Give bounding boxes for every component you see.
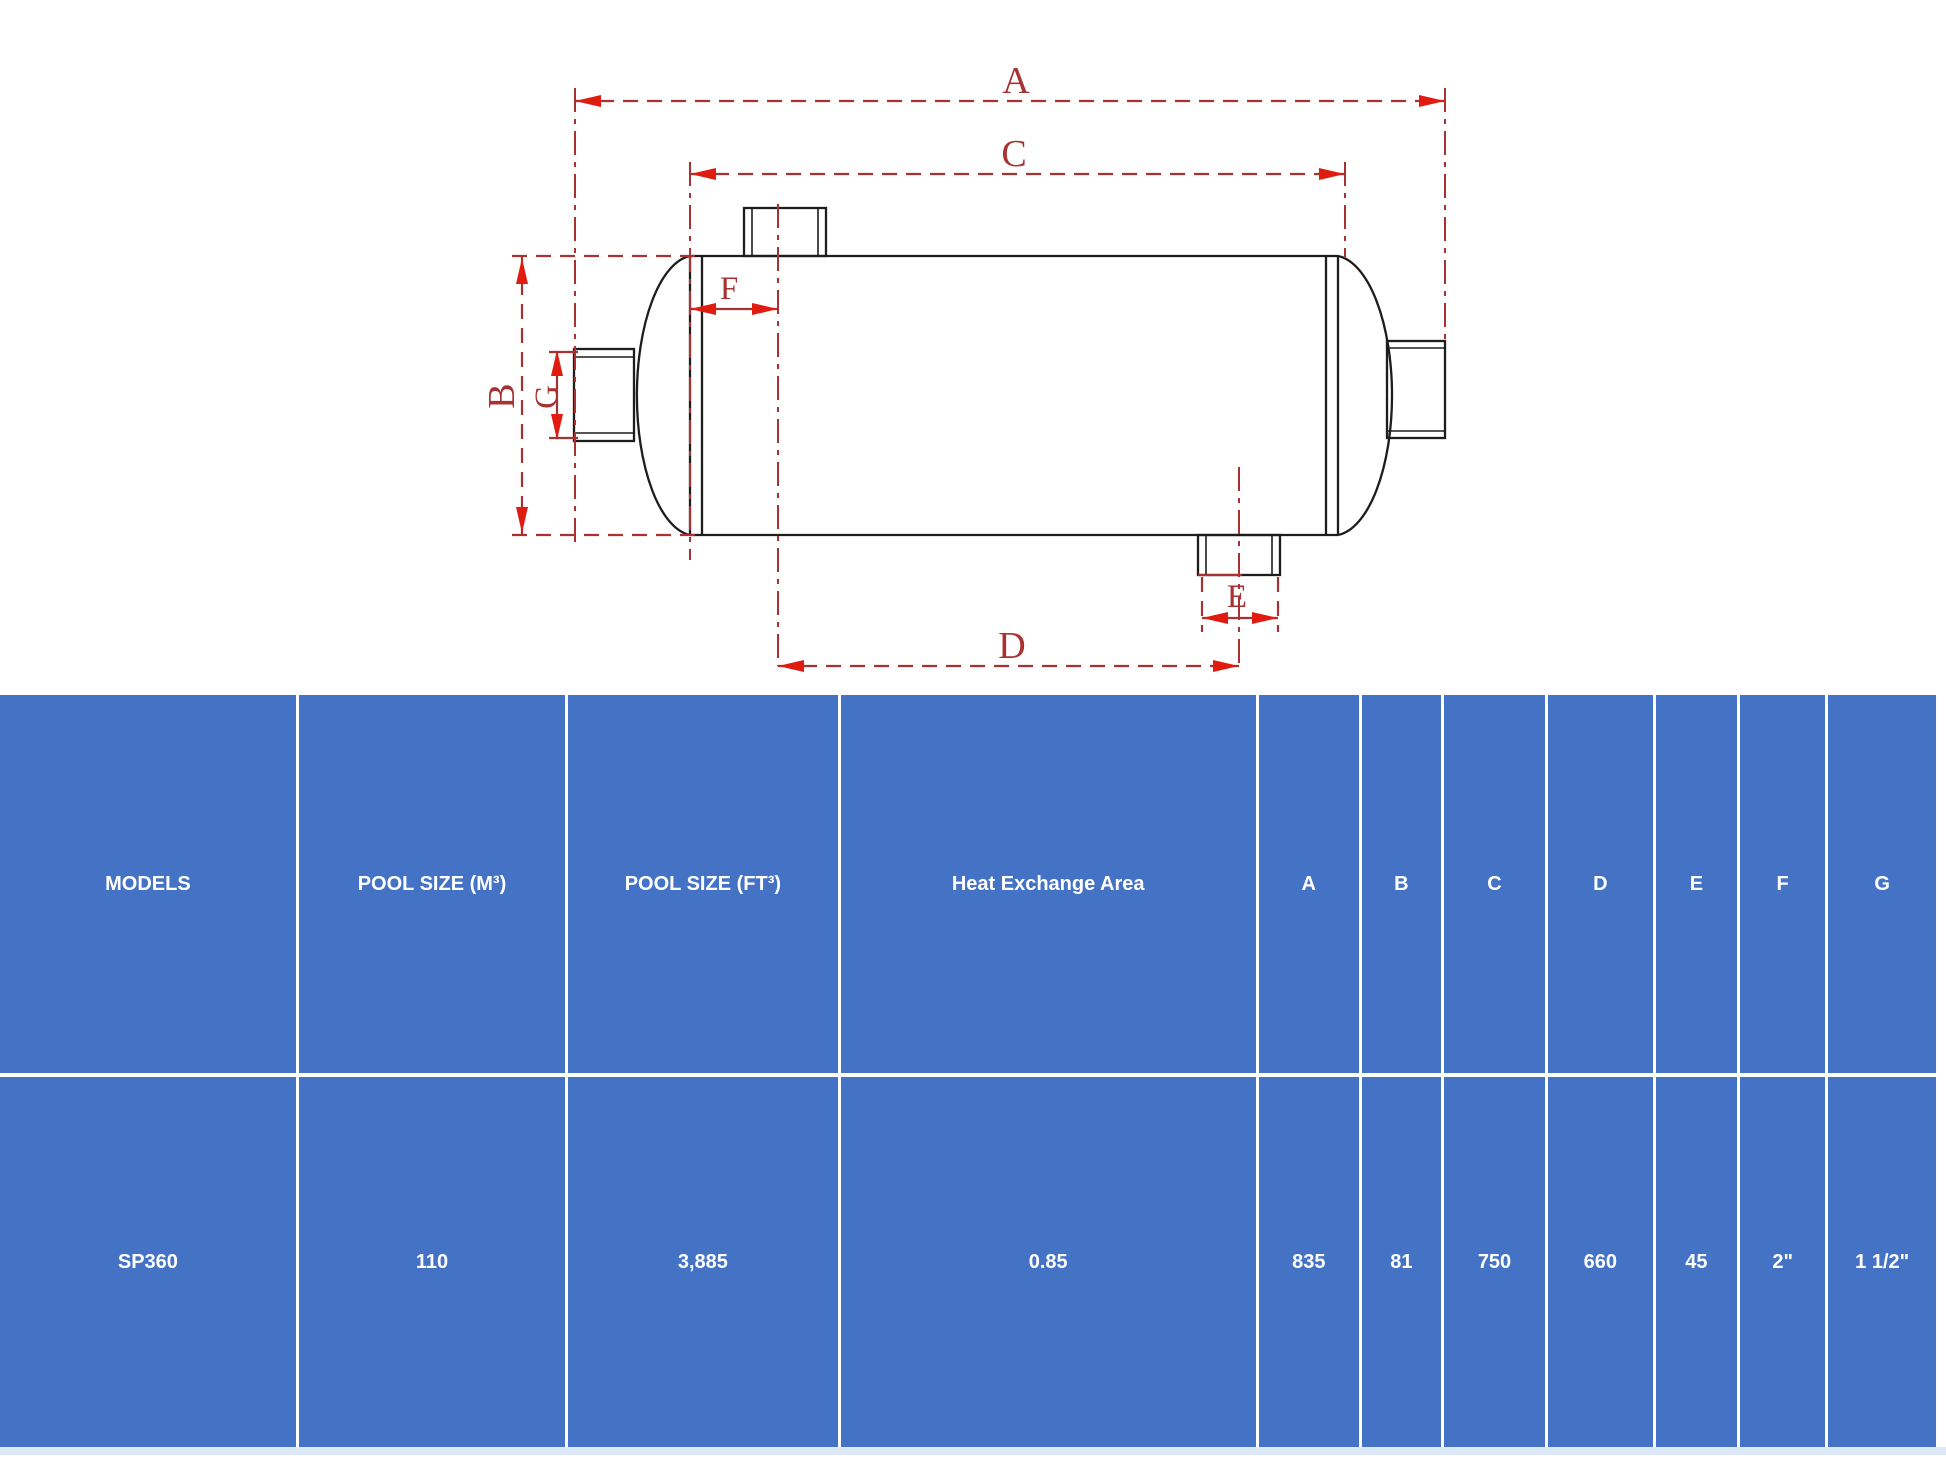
data-cell-a: 835: [1259, 1077, 1359, 1447]
heat-exchanger-diagram: A C F B G E D: [0, 0, 1946, 695]
dim-label-f: F: [720, 271, 738, 307]
dim-label-c: C: [1001, 133, 1026, 175]
diagram-svg: A C F B G E D: [0, 0, 1946, 695]
header-cell-heat-exchange-area: Heat Exchange Area: [841, 695, 1256, 1073]
left-tube-sheet: [690, 256, 702, 535]
dimension-lines: [512, 88, 1445, 672]
dim-label-a: A: [1002, 60, 1030, 102]
data-cell-pool-size-m3: 110: [299, 1077, 565, 1447]
page: { "theme": { "table_blue": "#4472c4", "t…: [0, 0, 1946, 1460]
top-port: [744, 208, 826, 256]
data-cell-heat-exchange-area: 0.85: [841, 1077, 1256, 1447]
header-cell-g: G: [1828, 695, 1936, 1073]
dim-label-d: D: [998, 625, 1025, 667]
vessel-outline: [637, 256, 1392, 535]
data-cell-c: 750: [1444, 1077, 1545, 1447]
header-cell-pool-size-m3: POOL SIZE (M³): [299, 695, 565, 1073]
data-cell-d: 660: [1548, 1077, 1653, 1447]
data-cell-model: SP360: [0, 1077, 296, 1447]
header-cell-pool-size-ft3: POOL SIZE (FT³): [568, 695, 837, 1073]
header-cell-e: E: [1656, 695, 1737, 1073]
header-cell-d: D: [1548, 695, 1653, 1073]
dimension-labels: A C F B G E D: [481, 60, 1247, 667]
right-tube-sheet: [1326, 256, 1338, 535]
header-cell-b: B: [1362, 695, 1441, 1073]
dim-label-g: G: [529, 385, 565, 409]
right-side-port: [1387, 341, 1445, 438]
header-cell-models: MODELS: [0, 695, 296, 1073]
header-cell-c: C: [1444, 695, 1545, 1073]
dim-label-b: B: [481, 383, 523, 408]
data-cell-g: 1 1/2": [1828, 1077, 1936, 1447]
data-cell-e: 45: [1656, 1077, 1737, 1447]
right-end-cap: [1338, 256, 1392, 535]
left-side-port: [574, 349, 634, 441]
header-cell-f: F: [1740, 695, 1825, 1073]
dim-label-e: E: [1227, 579, 1247, 615]
left-end-cap: [637, 256, 690, 535]
header-cell-a: A: [1259, 695, 1359, 1073]
data-cell-pool-size-ft3: 3,885: [568, 1077, 837, 1447]
spec-grid: MODELS POOL SIZE (M³) POOL SIZE (FT³) He…: [0, 695, 1936, 1447]
data-cell-f: 2": [1740, 1077, 1825, 1447]
shell-body: [690, 256, 1338, 535]
ports: [574, 208, 1445, 575]
table-footer-strip: [0, 1447, 1946, 1455]
spec-table: MODELS POOL SIZE (M³) POOL SIZE (FT³) He…: [0, 695, 1946, 1455]
data-cell-b: 81: [1362, 1077, 1441, 1447]
